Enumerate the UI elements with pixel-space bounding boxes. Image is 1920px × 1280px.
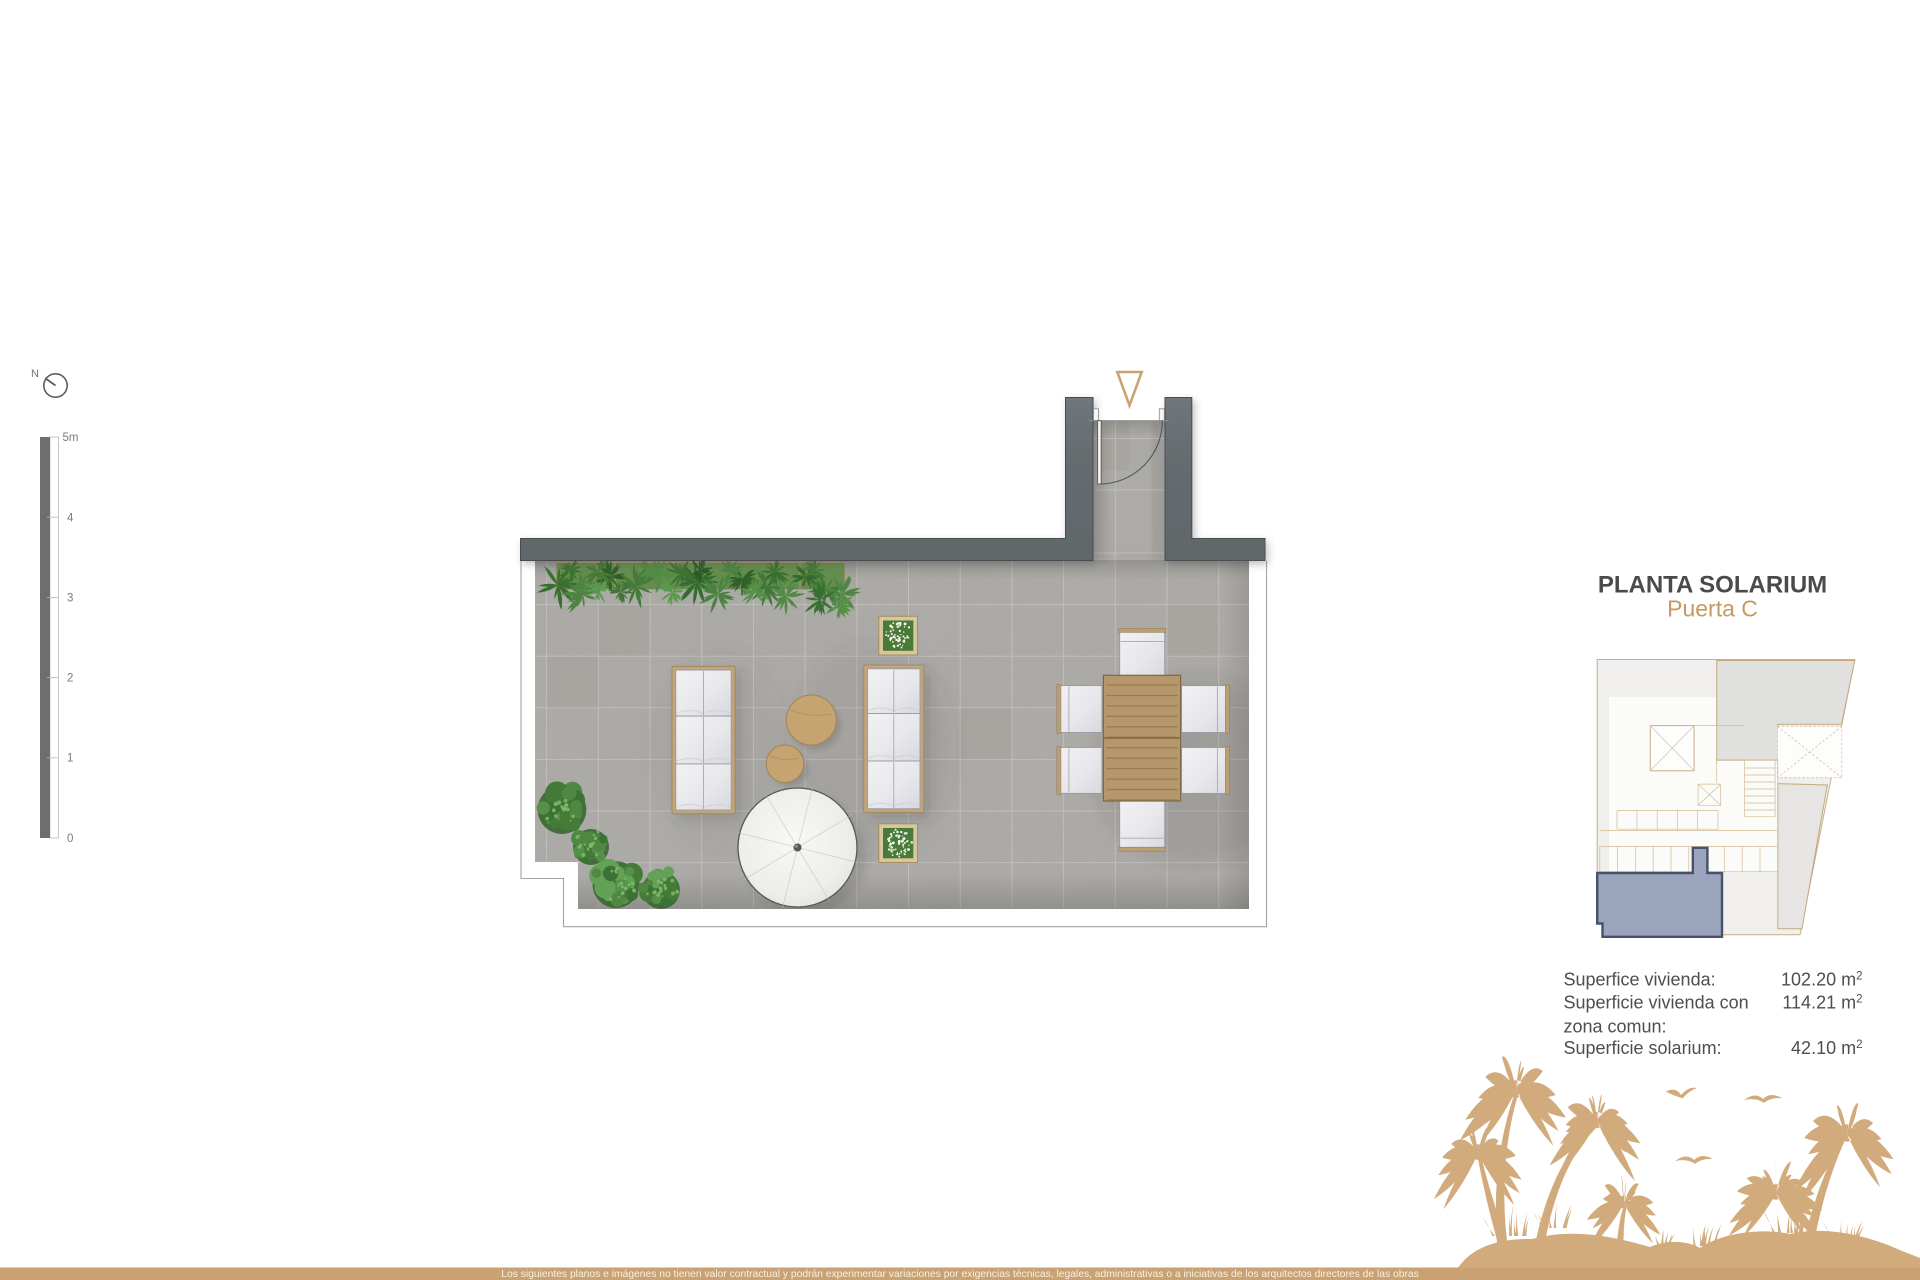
svg-text:1: 1 — [67, 753, 73, 765]
svg-text:4: 4 — [67, 513, 74, 525]
svg-text:Superfice vivienda:: Superfice vivienda: — [1564, 970, 1716, 990]
svg-text:zona comun:: zona comun: — [1564, 1017, 1667, 1037]
svg-text:0: 0 — [67, 833, 73, 845]
svg-text:PLANTA SOLARIUM: PLANTA SOLARIUM — [1598, 572, 1827, 599]
svg-text:Puerta C: Puerta C — [1667, 596, 1758, 622]
svg-text:102.20 m2: 102.20 m2 — [1781, 970, 1862, 990]
svg-text:2: 2 — [67, 673, 73, 685]
svg-text:114.21 m2: 114.21 m2 — [1782, 993, 1862, 1013]
svg-text:Superficie vivienda con: Superficie vivienda con — [1564, 993, 1749, 1013]
svg-text:N: N — [31, 368, 39, 380]
svg-text:Superficie solarium:: Superficie solarium: — [1564, 1038, 1722, 1058]
svg-text:Los siguientes planos e imágen: Los siguientes planos e imágenes no tien… — [501, 1269, 1419, 1280]
svg-text:3: 3 — [67, 593, 73, 605]
svg-text:42.10 m2: 42.10 m2 — [1791, 1038, 1862, 1058]
svg-text:5m: 5m — [63, 432, 79, 444]
